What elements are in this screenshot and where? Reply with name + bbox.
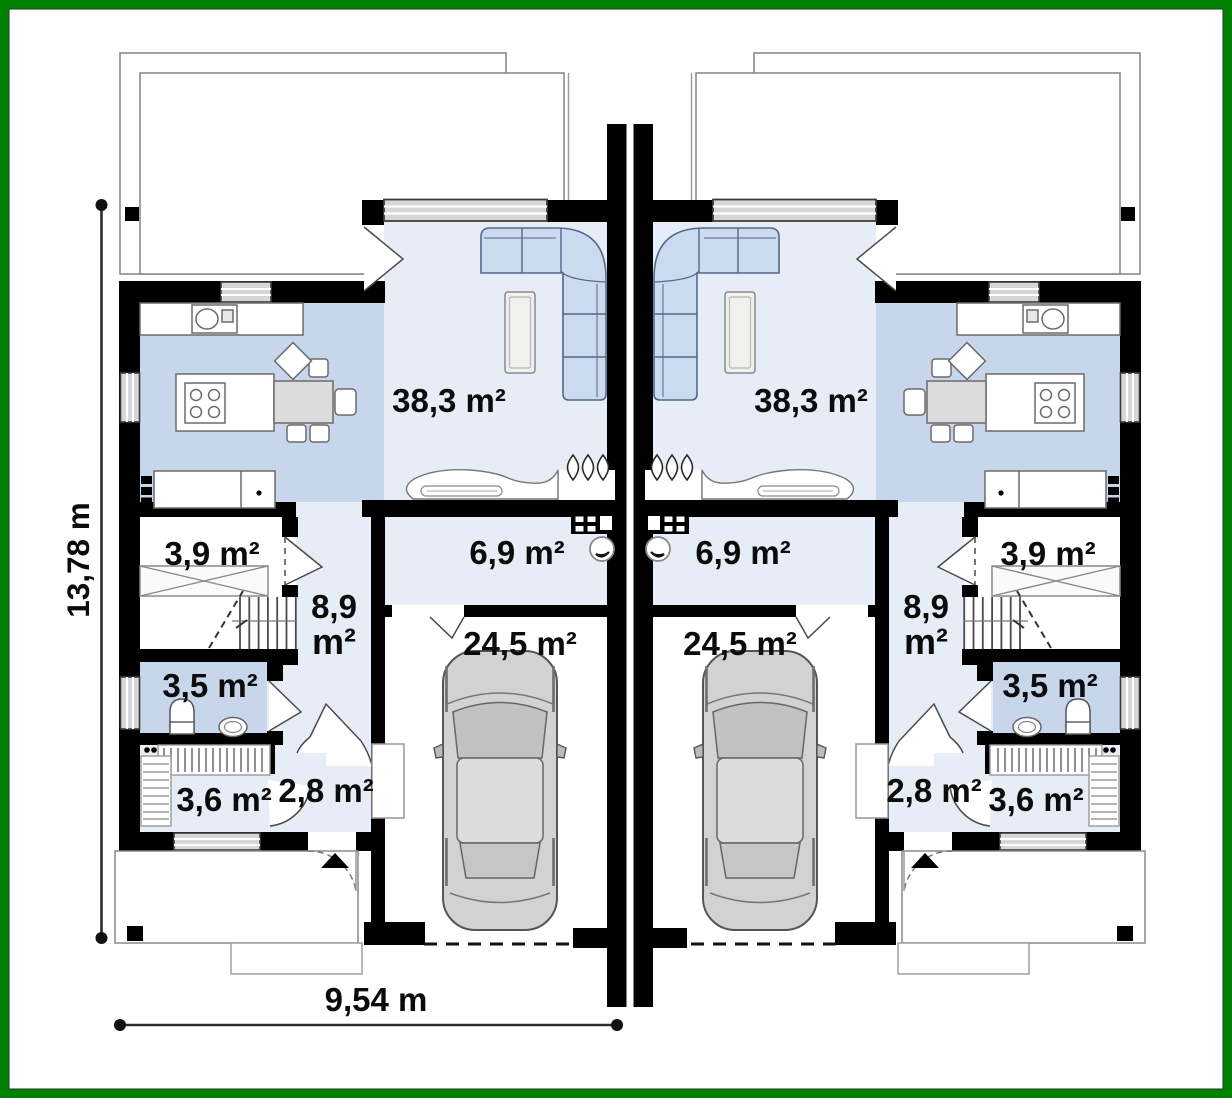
svg-text:3,5 m²: 3,5 m² xyxy=(1002,667,1097,704)
svg-text:2,8 m²: 2,8 m² xyxy=(278,772,373,809)
svg-text:8,9: 8,9 xyxy=(903,588,949,625)
svg-text:9,54 m: 9,54 m xyxy=(325,981,428,1018)
svg-text:3,9 m²: 3,9 m² xyxy=(1000,535,1095,572)
svg-text:3,6 m²: 3,6 m² xyxy=(176,781,271,818)
svg-text:13,78 m: 13,78 m xyxy=(60,502,96,618)
svg-text:24,5 m²: 24,5 m² xyxy=(463,625,577,662)
svg-text:6,9 m²: 6,9 m² xyxy=(695,534,790,571)
svg-text:38,3 m²: 38,3 m² xyxy=(392,382,506,419)
svg-text:8,9: 8,9 xyxy=(311,588,357,625)
svg-text:3,6 m²: 3,6 m² xyxy=(988,781,1083,818)
svg-text:38,3 m²: 38,3 m² xyxy=(754,382,868,419)
svg-text:6,9 m²: 6,9 m² xyxy=(469,534,564,571)
svg-text:24,5 m²: 24,5 m² xyxy=(683,625,797,662)
svg-text:3,5 m²: 3,5 m² xyxy=(162,667,257,704)
svg-text:m²: m² xyxy=(312,621,356,662)
svg-text:3,9 m²: 3,9 m² xyxy=(164,535,259,572)
svg-text:m²: m² xyxy=(904,621,948,662)
svg-text:2,8 m²: 2,8 m² xyxy=(886,772,981,809)
